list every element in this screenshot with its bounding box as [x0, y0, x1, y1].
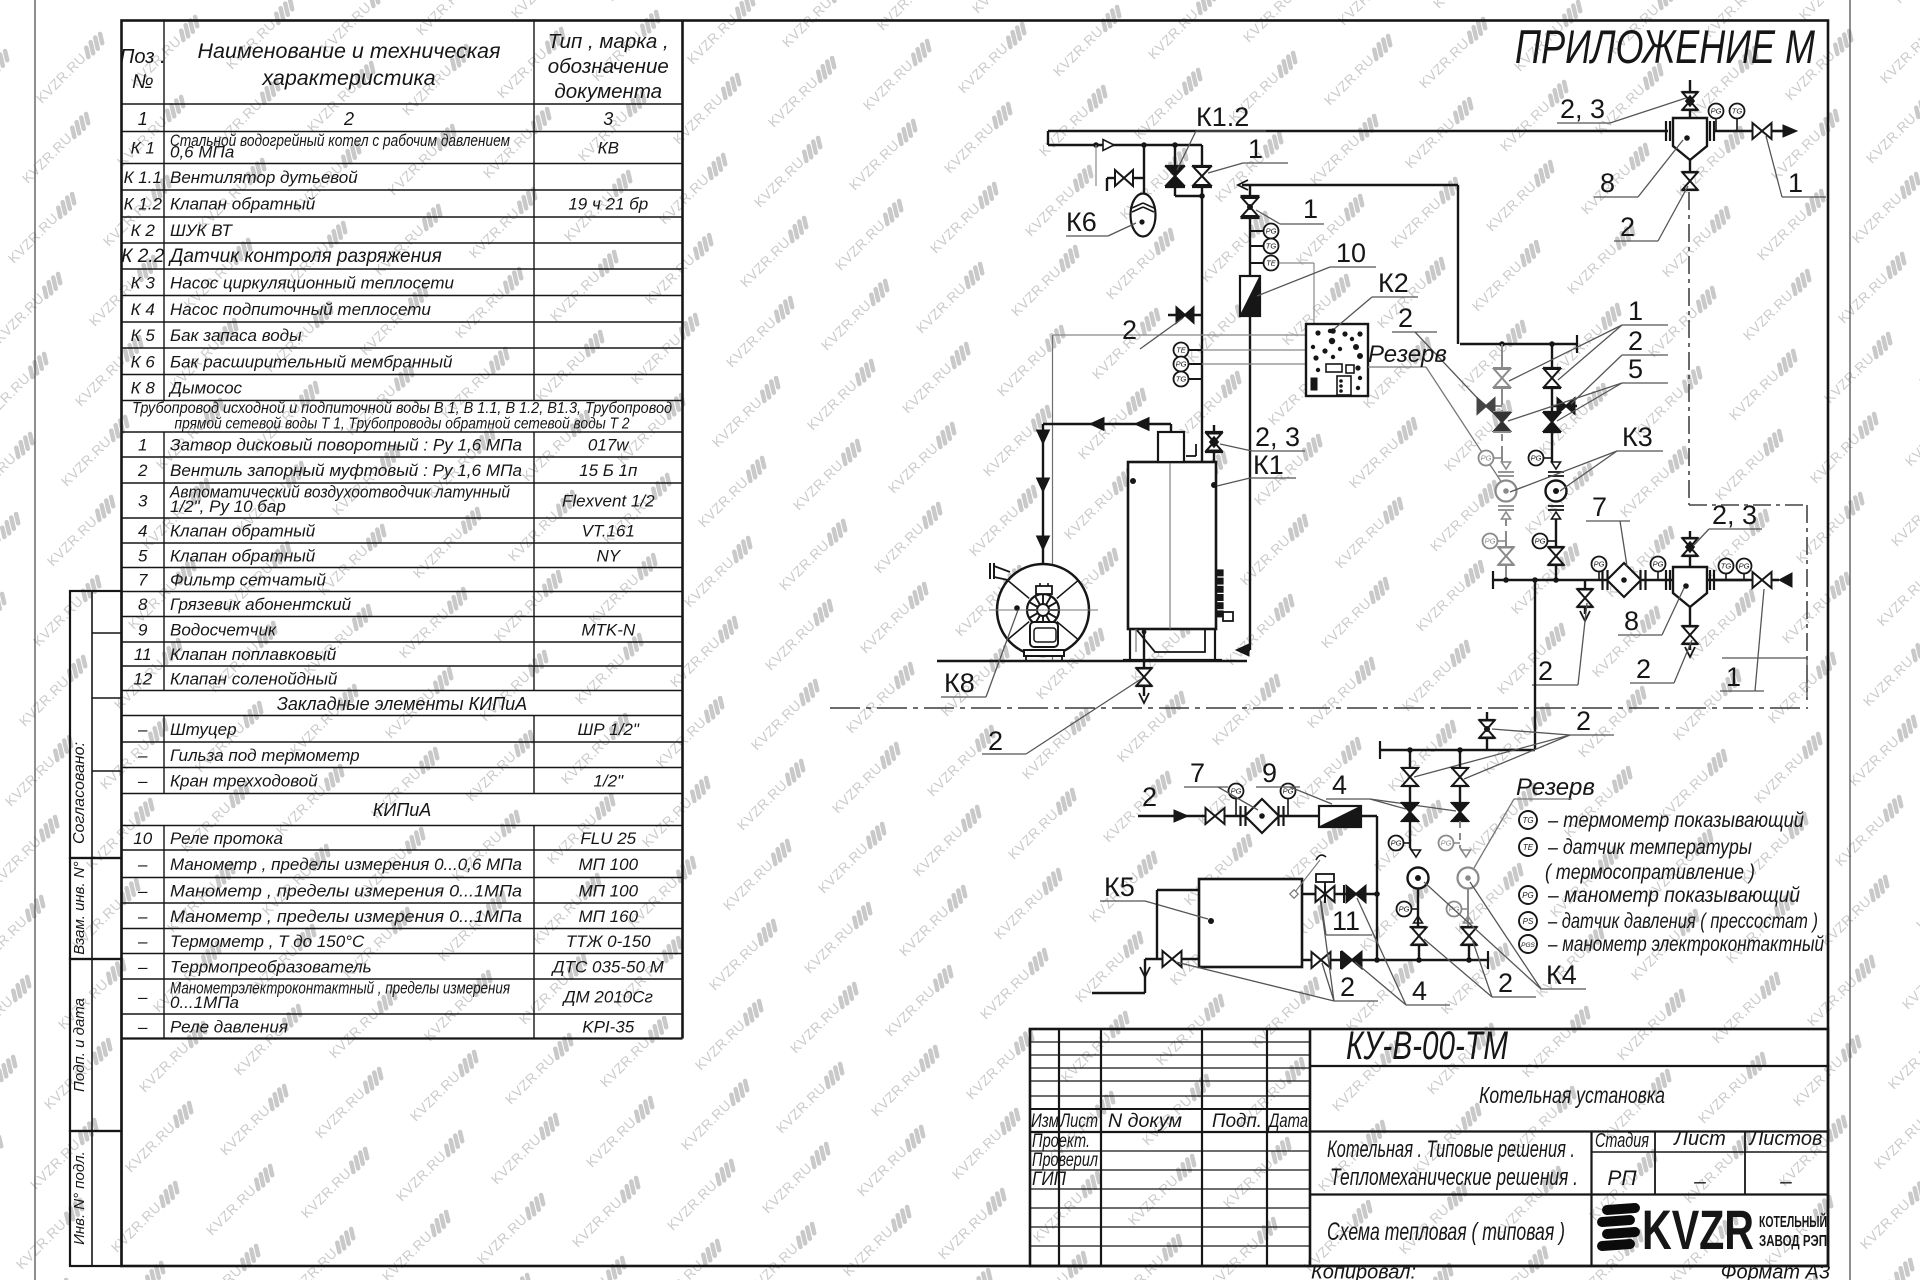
svg-text:2: 2 [137, 461, 148, 480]
svg-text:КВ: КВ [598, 139, 619, 158]
svg-text:Изм: Изм [1031, 1111, 1059, 1132]
svg-text:К 2.2: К 2.2 [121, 246, 164, 267]
svg-text:8: 8 [1600, 168, 1615, 198]
svg-text:–: – [137, 932, 148, 951]
svg-text:10: 10 [1336, 238, 1366, 268]
svg-text:РП: РП [1607, 1167, 1637, 1190]
svg-text:К1.2: К1.2 [1196, 102, 1249, 132]
svg-text:TG: TG [1266, 242, 1277, 251]
svg-text:2: 2 [1142, 782, 1157, 812]
svg-text:Резерв: Резерв [1368, 341, 1447, 368]
svg-text:PG: PG [1391, 839, 1402, 848]
svg-text:017w: 017w [588, 436, 630, 455]
svg-text:PG: PG [1653, 560, 1664, 569]
svg-text:PS: PS [1523, 917, 1534, 926]
svg-text:Реле протока: Реле протока [170, 829, 283, 848]
svg-text:Подп.: Подп. [1212, 1111, 1262, 1132]
svg-text:К 1.2: К 1.2 [124, 195, 163, 214]
svg-text:1/2": 1/2" [593, 772, 624, 791]
svg-text:2: 2 [988, 726, 1003, 756]
svg-text:КИПиА: КИПиА [373, 800, 432, 820]
svg-text:–: – [137, 957, 148, 976]
svg-text:–: – [137, 772, 148, 791]
svg-text:–: – [1693, 1170, 1706, 1193]
svg-text:PG: PG [1531, 454, 1542, 463]
svg-text:2: 2 [1340, 972, 1355, 1002]
svg-text:К2: К2 [1378, 268, 1409, 298]
svg-text:Клапан обратный: Клапан обратный [170, 522, 316, 541]
svg-text:ЗАВОД РЭП: ЗАВОД РЭП [1759, 1233, 1827, 1250]
svg-text:TE: TE [1176, 346, 1187, 355]
svg-text:–: – [1779, 1170, 1792, 1193]
svg-text:VT.161: VT.161 [582, 522, 635, 541]
svg-text:N докум: N докум [1108, 1111, 1182, 1132]
svg-text:Дата: Дата [1267, 1111, 1308, 1132]
svg-text:11: 11 [1332, 906, 1360, 936]
svg-text:Затвор дисковый поворотный :: Затвор дисковый поворотный : Ру 1,6 МПа [170, 436, 522, 455]
svg-text:0,6 МПа: 0,6 МПа [170, 143, 234, 162]
svg-text:NY: NY [596, 546, 621, 565]
svg-text:1: 1 [138, 436, 147, 455]
svg-text:Котельная установка: Котельная установка [1479, 1082, 1665, 1108]
svg-text:Трубопровод исходной и подп: Трубопровод исходной и подпиточной воды … [132, 400, 672, 417]
svg-text:PG: PG [1481, 454, 1492, 463]
svg-text:TG: TG [1176, 375, 1187, 384]
svg-text:К 1: К 1 [131, 139, 155, 158]
svg-text:К 8: К 8 [131, 379, 156, 398]
svg-text:Вентиль запорный муфтовый : Р: Вентиль запорный муфтовый : Ру 1,6 МПа [170, 461, 522, 480]
svg-text:Террмопреобразователь: Террмопреобразователь [170, 957, 372, 976]
svg-text:– манометр показывающий: – манометр показывающий [1547, 884, 1800, 907]
svg-text:–: – [137, 855, 148, 874]
svg-text:Схема тепловая ( типовая ): Схема тепловая ( типовая ) [1327, 1218, 1565, 1246]
svg-text:2: 2 [1498, 968, 1513, 998]
svg-text:Насос подпиточный теплосети: Насос подпиточный теплосети [170, 300, 431, 319]
svg-text:ШУК ВТ: ШУК ВТ [170, 221, 233, 240]
svg-text:Инв. N° подл.: Инв. N° подл. [71, 1151, 88, 1245]
svg-text:1: 1 [1628, 296, 1643, 326]
svg-text:7: 7 [1592, 492, 1607, 522]
svg-text:PG: PG [1739, 562, 1750, 571]
svg-text:0...1МПа: 0...1МПа [170, 993, 239, 1012]
svg-text:PG: PG [1399, 905, 1410, 914]
svg-text:К 2: К 2 [131, 221, 156, 240]
svg-text:PG: PG [1535, 537, 1546, 546]
svg-text:Закладные элементы КИПиА: Закладные элементы КИПиА [277, 694, 527, 714]
svg-text:4: 4 [1412, 976, 1427, 1006]
svg-text:9: 9 [1262, 758, 1277, 788]
svg-text:Дымосос: Дымосос [168, 379, 243, 398]
svg-text:2: 2 [343, 109, 354, 129]
svg-text:– датчик давления ( прессост: – датчик давления ( прессостат ) [1547, 910, 1818, 933]
svg-text:КУ-В-00-ТМ: КУ-В-00-ТМ [1346, 1024, 1508, 1068]
svg-text:1/2", Ру 10 бар: 1/2", Ру 10 бар [170, 497, 286, 516]
svg-text:К1: К1 [1253, 450, 1284, 480]
svg-text:PG: PG [1231, 787, 1242, 796]
svg-text:1: 1 [1303, 194, 1318, 224]
svg-text:–: – [137, 1017, 148, 1036]
svg-text:9: 9 [138, 620, 148, 639]
svg-text:Вентилятор дутьевой: Вентилятор дутьевой [170, 168, 358, 187]
svg-text:PG: PG [1441, 839, 1452, 848]
svg-text:4: 4 [1332, 770, 1347, 800]
svg-text:PG: PG [1594, 560, 1605, 569]
svg-text:К 6: К 6 [131, 352, 156, 371]
svg-text:1: 1 [138, 109, 148, 129]
svg-text:KPI-35: KPI-35 [582, 1017, 635, 1036]
svg-text:К 5: К 5 [131, 326, 156, 345]
svg-text:КОТЕЛЬНЫЙ: КОТЕЛЬНЫЙ [1759, 1213, 1827, 1231]
svg-text:Манометр , пределы измерения: Манометр , пределы измерения 0...0,6 МПа [170, 855, 522, 874]
svg-text:Тип , марка ,: Тип , марка , [548, 30, 669, 53]
svg-text:2: 2 [1538, 656, 1553, 686]
svg-text:Клапан обратный: Клапан обратный [170, 546, 316, 565]
svg-text:Бак расширительный мембранный: Бак расширительный мембранный [170, 352, 453, 371]
svg-text:4: 4 [138, 522, 147, 541]
svg-text:Проект.: Проект. [1032, 1131, 1090, 1152]
svg-text:К4: К4 [1546, 960, 1577, 990]
svg-text:TG: TG [1721, 562, 1732, 571]
svg-text:7: 7 [1190, 758, 1205, 788]
svg-text:TE: TE [1523, 843, 1534, 852]
svg-text:Копировал:: Копировал: [1311, 1262, 1416, 1281]
svg-text:8: 8 [138, 595, 148, 614]
svg-text:Фильтр сетчатый: Фильтр сетчатый [170, 571, 326, 590]
svg-text:2: 2 [1636, 654, 1651, 684]
svg-text:ПРИЛОЖЕНИЕ М: ПРИЛОЖЕНИЕ М [1515, 20, 1816, 73]
svg-text:–: – [137, 746, 148, 765]
svg-text:МП 100: МП 100 [578, 881, 638, 900]
svg-text:Подп. и дата: Подп. и дата [71, 998, 88, 1092]
svg-text:Поз .: Поз . [120, 46, 166, 68]
svg-text:Термометр , Т до 150°С: Термометр , Т до 150°С [170, 932, 365, 951]
svg-text:5: 5 [1628, 354, 1643, 384]
svg-text:– манометр электроконтактный: – манометр электроконтактный [1547, 933, 1824, 956]
svg-text:документа: документа [554, 80, 662, 103]
svg-text:1: 1 [1788, 168, 1803, 198]
svg-text:TE: TE [1266, 259, 1277, 268]
svg-text:Согласовано:: Согласовано: [71, 742, 88, 844]
svg-text:3: 3 [138, 492, 148, 511]
svg-text:TG: TG [1522, 816, 1533, 825]
svg-text:К6: К6 [1066, 207, 1097, 237]
svg-text:Проверил: Проверил [1032, 1150, 1098, 1171]
svg-text:–: – [137, 907, 148, 926]
svg-text:К5: К5 [1104, 872, 1135, 902]
svg-text:К 3: К 3 [131, 273, 156, 292]
svg-text:19 ч 21 бр: 19 ч 21 бр [568, 195, 648, 214]
svg-text:Грязевик абонентский: Грязевик абонентский [170, 595, 352, 614]
svg-text:PG: PG [1522, 891, 1534, 900]
svg-text:11: 11 [134, 645, 152, 664]
svg-text:1: 1 [1726, 662, 1741, 692]
svg-text:характеристика: характеристика [261, 66, 435, 90]
svg-text:Штуцер: Штуцер [170, 720, 237, 739]
svg-text:– термометр показывающий: – термометр показывающий [1547, 809, 1804, 832]
svg-text:Тепломеханические решения .: Тепломеханические решения . [1330, 1164, 1578, 1191]
svg-text:Насос циркуляционный теплосети: Насос циркуляционный теплосети [170, 273, 455, 292]
svg-text:Реле давления: Реле давления [170, 1017, 288, 1036]
svg-text:ТТЖ 0-150: ТТЖ 0-150 [566, 932, 651, 951]
svg-text:ГИП: ГИП [1032, 1169, 1066, 1190]
svg-text:Кран трехходовой: Кран трехходовой [170, 772, 318, 791]
svg-text:Бак запаса воды: Бак запаса воды [170, 326, 302, 345]
svg-text:8: 8 [1624, 606, 1639, 636]
svg-text:Клапан соленойдный: Клапан соленойдный [170, 669, 338, 688]
svg-text:Стадия: Стадия [1595, 1130, 1649, 1152]
svg-text:ДМ 2010Сг: ДМ 2010Сг [562, 988, 653, 1007]
svg-text:KVZR: KVZR [1642, 1198, 1754, 1261]
svg-text:FLU 25: FLU 25 [580, 829, 636, 848]
svg-text:PG: PG [1711, 107, 1722, 116]
svg-text:Гильза под термометр: Гильза под термометр [170, 746, 360, 765]
svg-text:Котельная . Типовые решения .: Котельная . Типовые решения . [1327, 1136, 1575, 1163]
svg-text:7: 7 [138, 571, 148, 590]
svg-text:ШР 1/2": ШР 1/2" [578, 720, 640, 739]
svg-text:5: 5 [138, 546, 148, 565]
svg-text:1: 1 [1248, 134, 1263, 164]
svg-text:Датчик контроля разряжения: Датчик контроля разряжения [168, 246, 442, 267]
svg-text:Водосчетчик: Водосчетчик [170, 620, 277, 639]
svg-text:PG: PG [1176, 360, 1187, 369]
svg-text:–: – [137, 720, 148, 739]
svg-text:Наименование и техническая: Наименование и техническая [198, 39, 501, 63]
svg-text:обозначение: обозначение [548, 55, 669, 78]
svg-text:12: 12 [133, 669, 152, 688]
svg-text:PGS: PGS [1521, 942, 1535, 949]
svg-text:2: 2 [1122, 315, 1137, 345]
svg-text:2, 3: 2, 3 [1560, 94, 1605, 124]
svg-text:К 1.1: К 1.1 [124, 168, 162, 187]
svg-text:MTK-N: MTK-N [581, 620, 636, 639]
svg-text:2: 2 [1620, 212, 1635, 242]
svg-text:Манометр , пределы измерения: Манометр , пределы измерения 0...1МПа [170, 881, 522, 900]
svg-text:прямой сетевой воды Т 1,: прямой сетевой воды Т 1, Трубопроводы об… [175, 416, 630, 433]
svg-text:Взам. инв. N°: Взам. инв. N° [71, 861, 88, 954]
svg-text:2: 2 [1576, 706, 1591, 736]
svg-text:№: № [132, 71, 154, 93]
svg-text:15 Б 1п: 15 Б 1п [579, 461, 638, 480]
svg-text:10: 10 [133, 829, 152, 848]
svg-text:TG: TG [1732, 107, 1743, 116]
svg-text:МП 160: МП 160 [578, 907, 638, 926]
svg-text:PG: PG [1485, 537, 1496, 546]
svg-text:– датчик температуры: – датчик температуры [1547, 836, 1752, 859]
svg-text:–: – [137, 881, 148, 900]
svg-text:К3: К3 [1622, 422, 1653, 452]
svg-text:Клапан поплавковый: Клапан поплавковый [170, 645, 337, 664]
svg-text:Листов: Листов [1748, 1128, 1823, 1150]
svg-text:( термосопративление ): ( термосопративление ) [1545, 861, 1755, 884]
svg-text:PG: PG [1266, 227, 1277, 236]
svg-text:Резерв: Резерв [1516, 774, 1595, 801]
svg-text:ДТС 035-50 М: ДТС 035-50 М [551, 957, 665, 976]
svg-text:К 4: К 4 [131, 300, 155, 319]
svg-text:МП 100: МП 100 [578, 855, 638, 874]
svg-text:2, 3: 2, 3 [1255, 422, 1300, 452]
svg-text:Манометр , пределы измерения: Манометр , пределы измерения 0...1МПа [170, 907, 522, 926]
svg-text:Лист: Лист [1672, 1128, 1726, 1150]
svg-text:2: 2 [1398, 303, 1413, 333]
svg-text:Клапан обратный: Клапан обратный [170, 195, 316, 214]
svg-text:–: – [137, 988, 148, 1007]
svg-text:Flexvent 1/2: Flexvent 1/2 [562, 492, 655, 511]
svg-text:Лист: Лист [1058, 1111, 1098, 1132]
svg-text:3: 3 [603, 109, 613, 129]
svg-text:Формат А3: Формат А3 [1721, 1262, 1830, 1281]
svg-text:К8: К8 [944, 668, 975, 698]
svg-text:2: 2 [1628, 326, 1643, 356]
